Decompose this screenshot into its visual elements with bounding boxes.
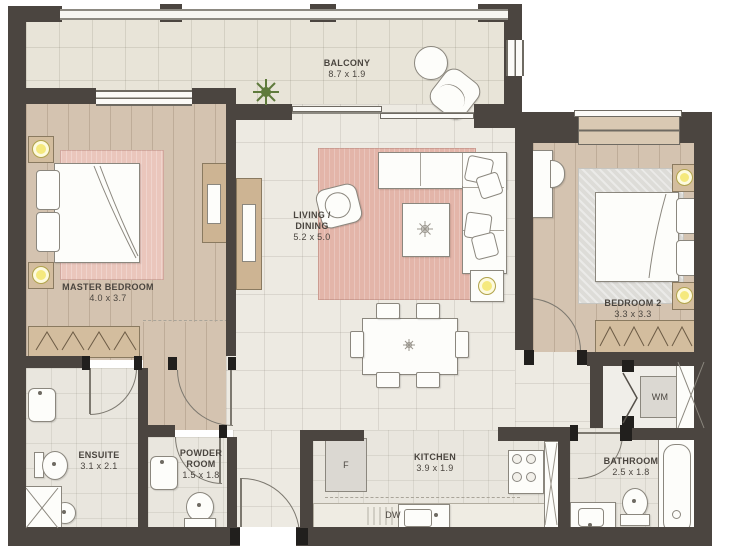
master-wardrobe: [28, 326, 140, 358]
sofa-seam: [462, 153, 463, 186]
tv-console-detail: [242, 204, 256, 262]
outer-wall-left: [8, 6, 26, 546]
master-bedroom-dims: 4.0 x 3.7: [38, 293, 178, 304]
powder-toilet-flush: [197, 503, 201, 507]
wm-top-wall: [587, 352, 694, 366]
dishwasher-text: DW: [378, 510, 408, 521]
door-jamb: [296, 528, 308, 545]
kitchen-sink-tap: [434, 513, 438, 517]
door-jamb: [524, 350, 534, 365]
bathroom-name: BATHROOM: [592, 456, 670, 467]
washing-machine-label: WM: [652, 392, 669, 402]
bathroom-dims: 2.5 x 1.8: [592, 467, 670, 478]
stove: [508, 450, 544, 494]
bedroom2-top-wall-corner: [678, 112, 712, 143]
living-dining-dims: 5.2 x 5.0: [268, 232, 356, 243]
bathroom-toilet-flush: [632, 499, 636, 503]
ensuite-shower-dot: [62, 510, 66, 514]
ensuite-sink-tap: [38, 391, 42, 395]
fridge: F: [325, 438, 367, 492]
dining-chair: [376, 303, 400, 319]
master-top-wall: [8, 88, 96, 104]
master-living-wall: [226, 104, 236, 356]
powder-top-wall: [148, 425, 175, 437]
balcony-name: BALCONY: [297, 58, 397, 69]
door-jamb: [134, 356, 142, 370]
door-jamb: [570, 425, 578, 441]
living-dining-name-line2: DINING: [268, 221, 356, 232]
balcony-railing: [60, 9, 508, 20]
ensuite-label: ENSUITE 3.1 x 2.1: [62, 450, 136, 472]
ensuite-top-wall: [8, 356, 90, 368]
living-dining-label: LIVING / DINING 5.2 x 5.0: [268, 210, 356, 243]
bathroom-top-wall: [632, 428, 694, 440]
door-jamb: [577, 350, 587, 365]
sliding-door-panel: [380, 113, 474, 119]
balcony-side-window: [506, 40, 524, 76]
ensuite-shower-box: [24, 486, 62, 532]
outer-wall-right: [694, 112, 712, 546]
bathtub-drain: [672, 510, 681, 519]
sofa-seam: [420, 153, 421, 186]
outer-wall-bottom: [8, 527, 712, 546]
balcony-label: BALCONY 8.7 x 1.9: [297, 58, 397, 80]
outer-wall-top-left-corner: [8, 6, 62, 22]
powder-right-wall: [227, 437, 237, 527]
kitchen-bathroom-wall: [558, 441, 570, 527]
ensuite-sink: [28, 388, 56, 422]
ensuite-door-leaf: [89, 368, 91, 414]
balcony-sliding-door: [292, 106, 474, 120]
living-top-wall-left: [236, 104, 292, 120]
master-door-leaf: [230, 370, 232, 425]
bedroom2-name: BEDROOM 2: [592, 298, 674, 309]
kitchen-name: KITCHEN: [398, 452, 472, 463]
ensuite-powder-wall: [138, 368, 148, 527]
bedroom2-nightstand-lamp: [676, 287, 693, 304]
kitchen-counter-dashed-edge: [325, 497, 520, 498]
kitchen-dims: 3.9 x 1.9: [398, 463, 472, 474]
kitchen-top-wall: [300, 430, 364, 441]
bedroom2-dims: 3.3 x 3.3: [592, 309, 674, 320]
sliding-door-panel: [292, 106, 382, 112]
bedroom2-window: [578, 116, 680, 145]
dining-chair: [416, 303, 440, 319]
dishwasher-label: DW: [378, 510, 408, 521]
wm-left-wall: [590, 366, 603, 428]
living-top-wall-right: [474, 104, 522, 128]
powder-room-dims: 1.5 x 1.8: [174, 470, 228, 481]
master-dresser-detail: [207, 184, 221, 224]
powder-sink-tap: [160, 460, 164, 464]
master-bed-pillow: [36, 170, 60, 210]
door-jamb: [622, 360, 634, 372]
floor-plan: F WM: [0, 0, 730, 553]
master-nightstand-lamp: [32, 140, 50, 158]
powder-room-label: POWDER ROOM 1.5 x 1.8: [174, 448, 228, 481]
master-bedroom-label: MASTER BEDROOM 4.0 x 3.7: [38, 282, 178, 304]
bathroom-label: BATHROOM 2.5 x 1.8: [592, 456, 670, 478]
bedroom2-nightstand-lamp: [676, 169, 693, 186]
bedroom2-label: BEDROOM 2 3.3 x 3.3: [592, 298, 674, 320]
master-bed: [54, 163, 140, 263]
kitchen-left-wall: [300, 430, 313, 527]
powder-room-name-line2: ROOM: [174, 459, 228, 470]
door-jamb: [82, 356, 90, 370]
hallway-threshold-dashed: [143, 320, 233, 321]
dining-chair: [455, 331, 469, 358]
dining-chair: [416, 372, 440, 388]
kitchen-sink-basin: [404, 509, 432, 527]
ensuite-toilet-flush: [52, 462, 56, 466]
door-jamb: [622, 416, 634, 428]
living-dining-name-line1: LIVING /: [268, 210, 356, 221]
ensuite-name: ENSUITE: [62, 450, 136, 461]
door-jamb: [230, 528, 240, 545]
side-table-lamp: [478, 277, 496, 295]
door-jamb: [168, 357, 177, 370]
coffee-table: [402, 203, 450, 257]
powder-room-name-line1: POWDER: [174, 448, 228, 459]
master-bed-pillow: [36, 212, 60, 252]
bedroom2-wardrobe: [595, 320, 696, 354]
door-jamb: [219, 425, 227, 438]
ensuite-dims: 3.1 x 2.1: [62, 461, 136, 472]
entry-door-opening: [240, 527, 296, 546]
fridge-label: F: [343, 460, 349, 470]
dining-chair: [376, 372, 400, 388]
bedroom2-living-wall: [515, 128, 533, 350]
bedroom2-bed: [595, 192, 679, 282]
kitchen-living-wall: [498, 427, 570, 441]
kitchen-label: KITCHEN 3.9 x 1.9: [398, 452, 472, 474]
door-jamb: [228, 357, 236, 370]
dining-table: [362, 318, 458, 375]
bathroom-toilet-tank: [620, 514, 650, 526]
master-bedroom-window: [96, 90, 192, 106]
balcony-dims: 8.7 x 1.9: [297, 69, 397, 80]
bathroom-door-leaf: [578, 432, 622, 434]
master-bedroom-name: MASTER BEDROOM: [38, 282, 178, 293]
dining-chair: [350, 331, 364, 358]
